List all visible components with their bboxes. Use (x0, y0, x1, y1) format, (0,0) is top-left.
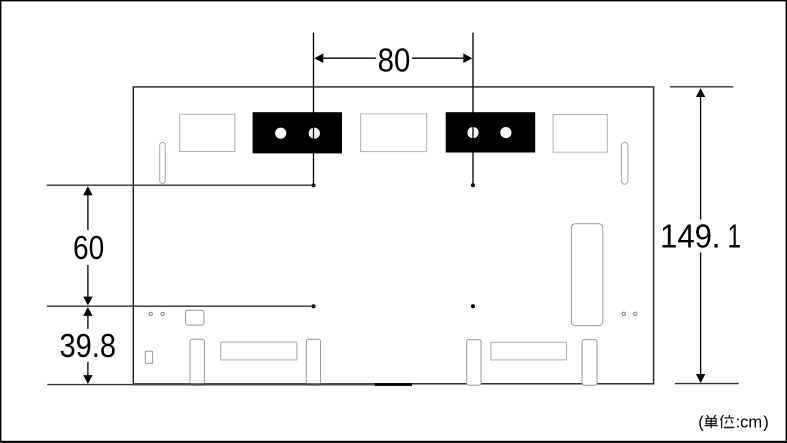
svg-text:1: 1 (728, 218, 742, 255)
svg-text:(: ( (698, 414, 704, 432)
svg-text:60: 60 (73, 229, 104, 266)
svg-text:149: 149 (660, 218, 712, 255)
svg-text:): ) (763, 414, 769, 432)
svg-text:.: . (712, 218, 721, 255)
svg-text:39.8: 39.8 (60, 327, 117, 364)
svg-text::cm: :cm (736, 414, 763, 432)
svg-text:80: 80 (378, 41, 411, 78)
